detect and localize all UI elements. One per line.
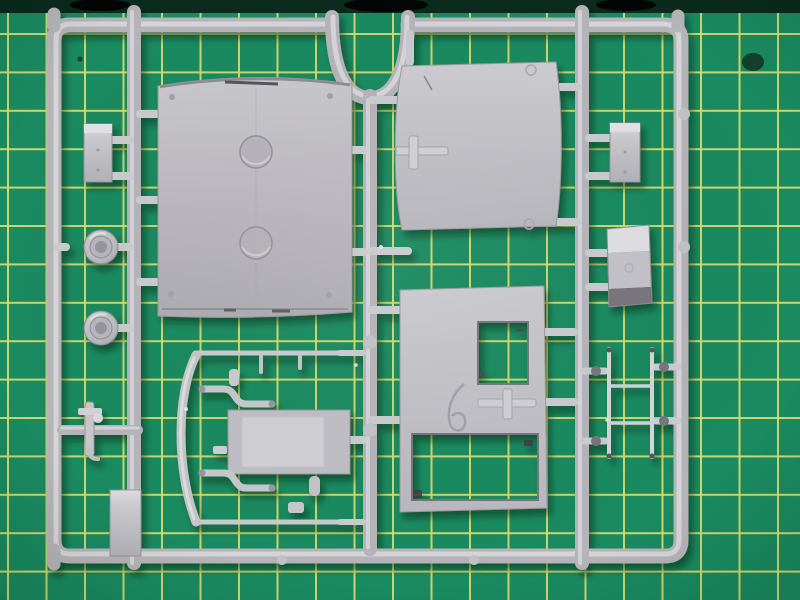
photo-frame: Photograph of a light-grey injection-mou… bbox=[0, 0, 800, 600]
photo-vignette bbox=[0, 0, 800, 600]
sprue-photo bbox=[0, 0, 800, 600]
